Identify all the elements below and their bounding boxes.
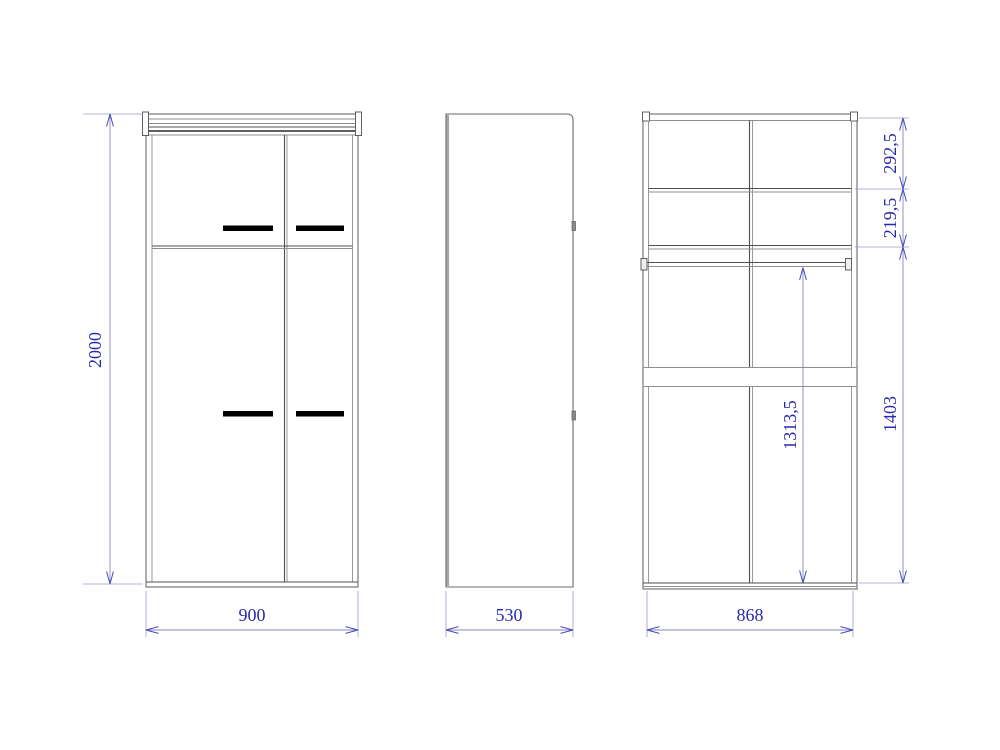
- front-view: [143, 112, 362, 587]
- dim-internal-width: 868: [647, 591, 853, 637]
- internal-top-right-tab: [851, 112, 858, 121]
- internal-middle-shelf: [643, 368, 857, 387]
- side-handle-upper: [572, 222, 576, 231]
- rod-cap-right: [846, 259, 852, 271]
- handle-upper-left: [223, 226, 273, 232]
- dim-side-depth: 530: [446, 591, 573, 637]
- internal-view: [641, 112, 858, 589]
- dim-right-stack: 292,5 219,5 1403: [855, 118, 909, 583]
- dim-rod-to-bottom-label: 1313,5: [780, 400, 800, 450]
- dim-side-depth-label: 530: [496, 605, 523, 625]
- dim-front-height-label: 2000: [85, 332, 105, 368]
- dim-section-shelf-label: 219,5: [880, 198, 900, 239]
- internal-top-left-tab: [643, 112, 650, 121]
- front-carcass: [146, 114, 358, 587]
- front-cornice-left-tab: [143, 112, 149, 136]
- dim-front-width-label: 900: [239, 605, 266, 625]
- side-panel: [446, 114, 573, 587]
- dim-front-width: 900: [146, 591, 358, 637]
- dim-section-bottom-label: 1403: [880, 396, 900, 432]
- drawing-canvas: 2000 900 530 868: [0, 0, 1000, 750]
- rod-cap-left: [641, 259, 647, 271]
- dim-front-height: 2000: [83, 114, 143, 584]
- dim-internal-width-label: 868: [737, 605, 764, 625]
- handle-lower-right: [296, 411, 344, 417]
- dim-section-top-label: 292,5: [880, 133, 900, 174]
- side-view: [446, 114, 576, 587]
- wardrobe-drawing: 2000 900 530 868: [0, 0, 1000, 750]
- side-handle-lower: [572, 411, 576, 420]
- handle-lower-left: [223, 411, 273, 417]
- front-cornice-right-tab: [356, 112, 362, 136]
- handle-upper-right: [296, 226, 344, 232]
